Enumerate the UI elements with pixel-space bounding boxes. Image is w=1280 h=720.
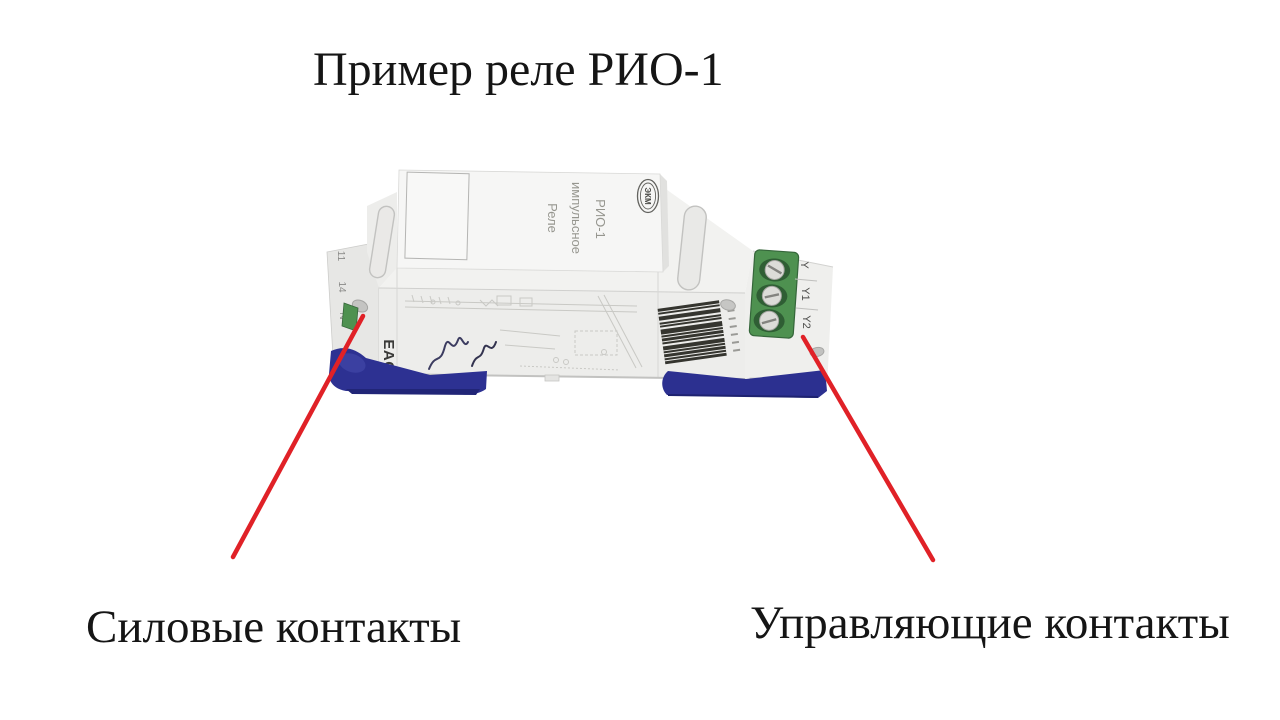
label-sticker — [405, 172, 469, 260]
terminal-label-y1: Y1 — [799, 287, 811, 300]
brand-badge: ЭКМ — [638, 180, 659, 213]
left-terminal-label-11: 11 — [335, 251, 346, 262]
terminal-label-y2: Y2 — [800, 315, 812, 328]
callout-line-control — [803, 337, 933, 560]
brand-badge-text: ЭКМ — [643, 187, 652, 205]
control-terminal-block — [749, 250, 799, 339]
product-name-line3: РИО-1 — [593, 199, 608, 239]
left-terminal-label-14: 14 — [336, 281, 347, 293]
annotated-relay-figure: Реле импульсное РИО-1 ЭКМ — [0, 0, 1280, 720]
terminal-label-y: Y — [798, 261, 810, 269]
power-contacts-label: Силовые контакты — [86, 602, 461, 654]
bottom-tab — [545, 375, 559, 381]
control-contacts-label: Управляющие контакты — [750, 598, 1230, 650]
product-name-line2: импульсное — [569, 182, 584, 254]
product-name-line1: Реле — [545, 203, 560, 233]
relay-device-photo: Реле импульсное РИО-1 ЭКМ — [327, 170, 833, 398]
din-clip-left-shadow — [346, 389, 480, 395]
callout-line-power — [233, 316, 363, 557]
figure-title: Пример реле РИО-1 — [313, 44, 724, 97]
